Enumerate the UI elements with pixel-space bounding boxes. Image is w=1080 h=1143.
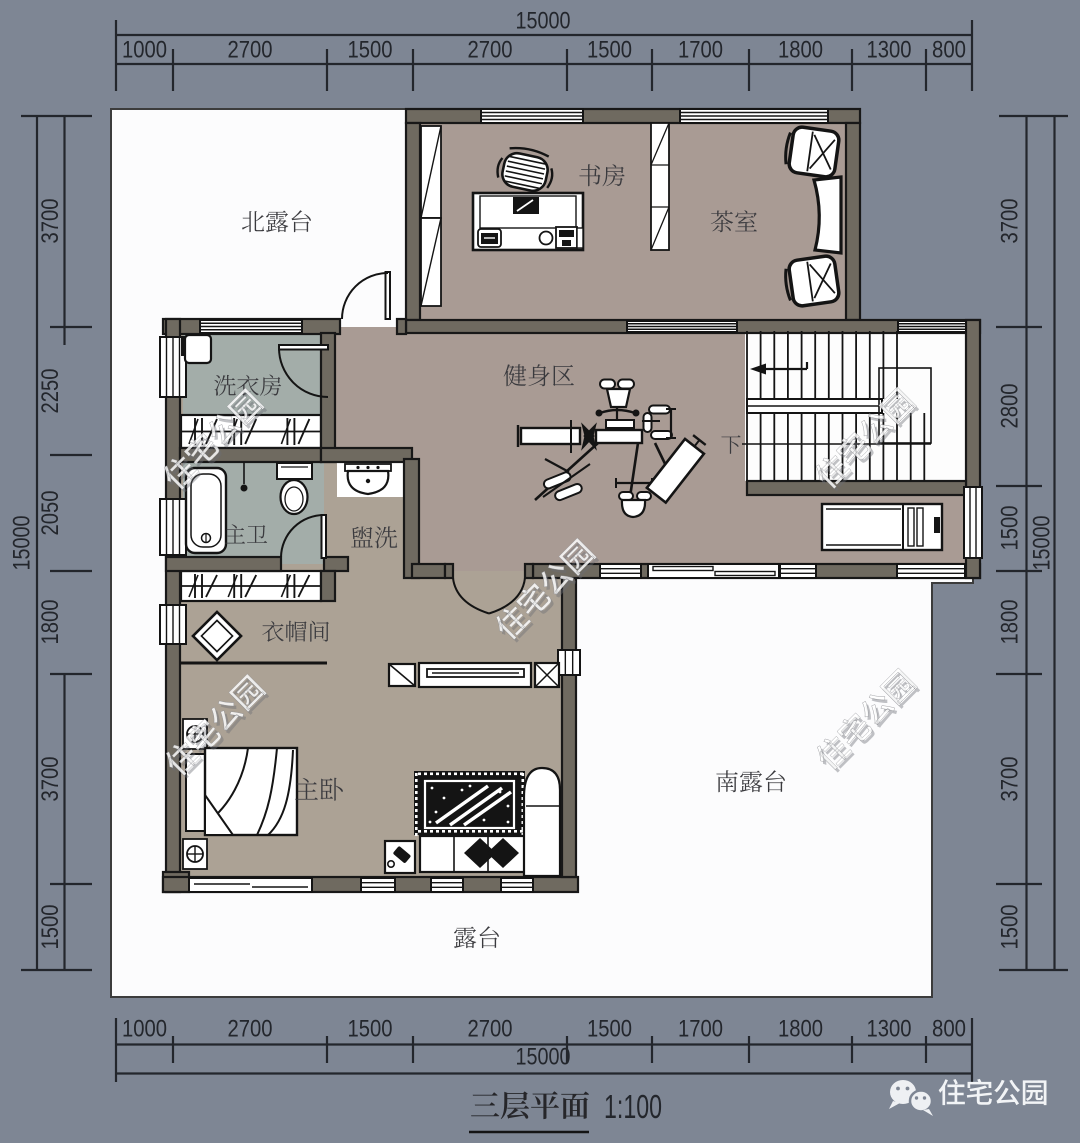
svg-text:1700: 1700 — [678, 1016, 723, 1043]
svg-text:2700: 2700 — [228, 1016, 273, 1043]
svg-text:1000: 1000 — [122, 37, 167, 64]
svg-text:2700: 2700 — [468, 1016, 513, 1043]
svg-text:1800: 1800 — [37, 600, 64, 645]
svg-text:2800: 2800 — [997, 384, 1024, 429]
svg-text:3700: 3700 — [997, 199, 1024, 244]
svg-text:1800: 1800 — [778, 37, 823, 64]
svg-text:1800: 1800 — [778, 1016, 823, 1043]
svg-text:1700: 1700 — [678, 37, 723, 64]
svg-text:1500: 1500 — [348, 37, 393, 64]
svg-text:3700: 3700 — [37, 757, 64, 802]
svg-text:1500: 1500 — [587, 1016, 632, 1043]
svg-text:1300: 1300 — [867, 1016, 912, 1043]
svg-text:1500: 1500 — [587, 37, 632, 64]
svg-text:3700: 3700 — [37, 199, 64, 244]
svg-text:15000: 15000 — [516, 8, 571, 35]
svg-text:1:100: 1:100 — [604, 1088, 662, 1125]
svg-text:1800: 1800 — [997, 600, 1024, 645]
svg-text:1500: 1500 — [37, 905, 64, 950]
svg-text:1500: 1500 — [997, 506, 1024, 551]
svg-text:3700: 3700 — [997, 757, 1024, 802]
svg-text:15000: 15000 — [1029, 516, 1056, 571]
svg-text:800: 800 — [932, 37, 966, 64]
svg-text:2700: 2700 — [468, 37, 513, 64]
svg-text:2050: 2050 — [37, 491, 64, 536]
svg-text:15000: 15000 — [9, 516, 36, 571]
svg-text:1300: 1300 — [867, 37, 912, 64]
svg-text:2250: 2250 — [37, 369, 64, 414]
svg-text:2700: 2700 — [228, 37, 273, 64]
svg-text:1500: 1500 — [348, 1016, 393, 1043]
svg-text:1500: 1500 — [997, 905, 1024, 950]
svg-text:800: 800 — [932, 1016, 966, 1043]
svg-text:15000: 15000 — [516, 1044, 571, 1071]
svg-text:1000: 1000 — [122, 1016, 167, 1043]
